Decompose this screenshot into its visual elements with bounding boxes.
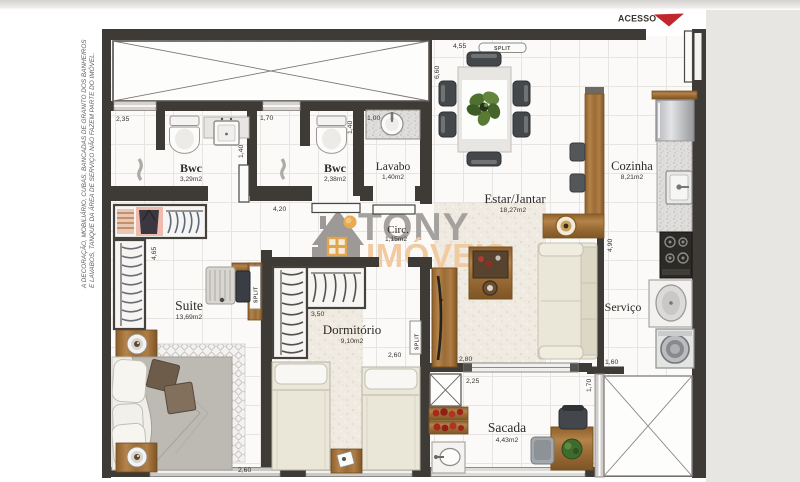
svg-text:2,60: 2,60 (238, 467, 251, 474)
svg-text:Estar/Jantar: Estar/Jantar (484, 191, 546, 206)
svg-text:Circ.: Circ. (387, 224, 409, 236)
svg-text:Bwc: Bwc (180, 161, 203, 175)
svg-text:SPLIT: SPLIT (254, 286, 260, 303)
svg-text:SPLIT: SPLIT (494, 46, 511, 52)
svg-text:2,38m2: 2,38m2 (324, 176, 346, 183)
svg-text:E LAVABOS, TANQUE DA ÁREA DE S: E LAVABOS, TANQUE DA ÁREA DE SERVIÇO NÃO… (87, 53, 96, 288)
svg-text:2,25: 2,25 (466, 378, 479, 385)
svg-text:3,50: 3,50 (311, 311, 324, 318)
svg-text:1,40: 1,40 (347, 121, 354, 134)
svg-text:Lavabo: Lavabo (376, 161, 411, 173)
svg-text:6,60: 6,60 (434, 66, 441, 79)
svg-text:13,69m2: 13,69m2 (176, 314, 203, 321)
svg-text:4,55: 4,55 (453, 43, 466, 50)
svg-text:Sacada: Sacada (488, 420, 526, 435)
svg-text:1,40: 1,40 (238, 145, 245, 158)
svg-text:1,15m2: 1,15m2 (385, 236, 407, 243)
svg-text:2,35: 2,35 (116, 116, 129, 123)
svg-text:SPLIT: SPLIT (415, 333, 421, 350)
svg-text:Bwc: Bwc (324, 161, 347, 175)
svg-text:1,70: 1,70 (260, 115, 273, 122)
svg-text:1,60: 1,60 (605, 359, 618, 366)
svg-text:4,43m2: 4,43m2 (496, 437, 519, 444)
svg-text:Suite: Suite (175, 298, 203, 313)
svg-text:8,21m2: 8,21m2 (621, 174, 644, 181)
svg-text:4,65: 4,65 (151, 247, 158, 260)
svg-text:Serviço: Serviço (605, 300, 642, 314)
svg-text:4,90: 4,90 (607, 239, 614, 252)
svg-text:1,70: 1,70 (586, 379, 593, 392)
svg-text:1,00: 1,00 (367, 115, 380, 122)
svg-text:Cozinha: Cozinha (611, 159, 653, 173)
svg-text:4,20: 4,20 (273, 206, 286, 213)
svg-text:ACESSO: ACESSO (618, 14, 656, 24)
svg-text:1,40m2: 1,40m2 (382, 174, 404, 181)
svg-text:A DECORAÇÃO, MOBILIÁRIO, CUBAS: A DECORAÇÃO, MOBILIÁRIO, CUBAS, BANCADAS… (79, 39, 88, 289)
svg-text:3,29m2: 3,29m2 (180, 176, 202, 183)
svg-text:Dormitório: Dormitório (323, 322, 382, 337)
svg-text:2,80: 2,80 (459, 356, 472, 363)
svg-text:18,27m2: 18,27m2 (500, 207, 527, 214)
svg-text:9,10m2: 9,10m2 (341, 338, 364, 345)
svg-text:2,60: 2,60 (388, 352, 401, 359)
